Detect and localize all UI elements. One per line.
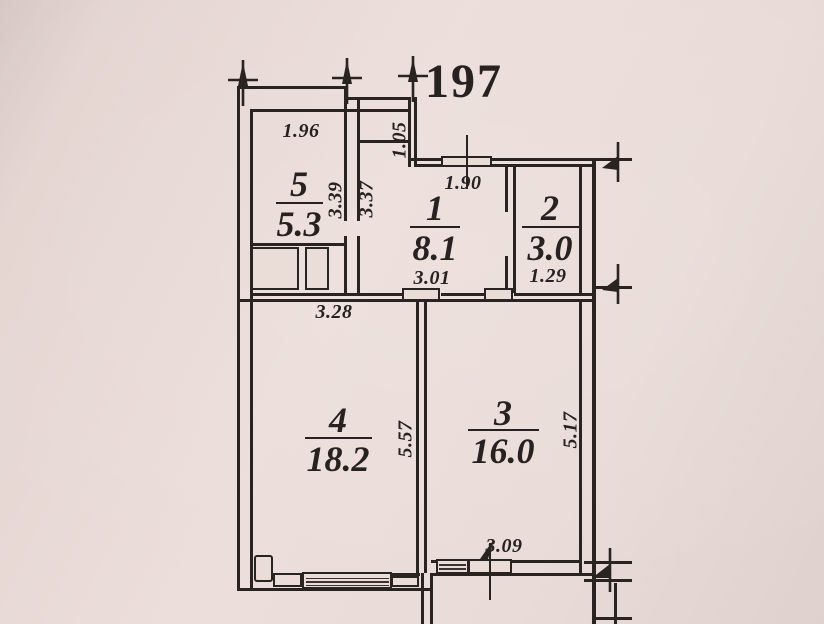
wall-segment — [430, 573, 433, 624]
dim-room2-width: 1.29 — [530, 265, 567, 288]
wall-segment — [441, 293, 484, 296]
wall-segment — [414, 97, 417, 167]
room-3-number: 3 — [494, 395, 512, 431]
wall-segment — [513, 164, 516, 293]
closet-outline — [305, 247, 329, 290]
window-glazing-line — [306, 581, 389, 583]
survey-tick-icon — [228, 60, 258, 106]
wall-segment — [357, 236, 360, 293]
wall-segment — [579, 164, 582, 293]
window-symbol — [436, 559, 469, 574]
wall-segment — [424, 299, 427, 573]
room-2-number: 2 — [541, 190, 559, 226]
wall-segment — [421, 573, 424, 624]
closet-outline — [251, 247, 299, 290]
dim-niche-height: 1.05 — [389, 122, 412, 159]
dim-room1-top-width: 1.90 — [445, 172, 482, 195]
apartment-number-label: 197 — [425, 58, 503, 106]
room-1-area: 8.1 — [413, 230, 458, 266]
window-glazing-line — [439, 568, 466, 570]
survey-tick-icon — [592, 548, 628, 592]
dim-room5-height: 3.39 — [325, 182, 348, 219]
dim-room3-width: 3.09 — [486, 535, 523, 558]
floor-plan-photo: 197 5 5.3 1 8.1 3.01 2 3.0 1.29 4 18.2 3… — [0, 0, 824, 624]
room-3-area: 16.0 — [472, 433, 535, 469]
window-glazing-line — [306, 578, 389, 580]
window-glazing-line — [439, 564, 466, 566]
room-4-area: 18.2 — [307, 441, 370, 477]
dim-room3-height: 5.17 — [560, 412, 583, 449]
room-5-area: 5.3 — [277, 206, 322, 242]
dim-room1-left-height: 3.37 — [356, 181, 379, 218]
room-5-number: 5 — [290, 166, 308, 202]
wall-segment — [344, 236, 347, 293]
survey-tick-icon — [332, 58, 362, 104]
wall-segment — [592, 617, 632, 620]
room-1-number: 1 — [426, 190, 444, 226]
radiator-symbol — [254, 555, 273, 582]
wall-segment — [505, 164, 508, 212]
window-glazing-line — [306, 585, 389, 587]
wall-pier — [273, 573, 302, 587]
room-2-area: 3.0 — [528, 230, 573, 266]
survey-tick-icon — [398, 56, 428, 102]
dim-hall-width: 3.28 — [316, 301, 353, 324]
door-opening — [484, 288, 513, 301]
dim-room4-height: 5.57 — [395, 421, 418, 458]
dim-room5-top-width: 1.96 — [283, 120, 320, 143]
wall-segment — [250, 109, 253, 588]
wall-segment — [250, 109, 411, 112]
wall-pier — [391, 576, 419, 587]
wall-segment — [237, 86, 240, 590]
wall-segment — [514, 293, 594, 296]
survey-tick-icon — [600, 142, 636, 182]
dim-room1-width: 3.01 — [414, 267, 451, 290]
room-4-number: 4 — [329, 402, 347, 438]
wall-segment — [252, 293, 403, 296]
survey-tick-icon — [600, 264, 636, 304]
